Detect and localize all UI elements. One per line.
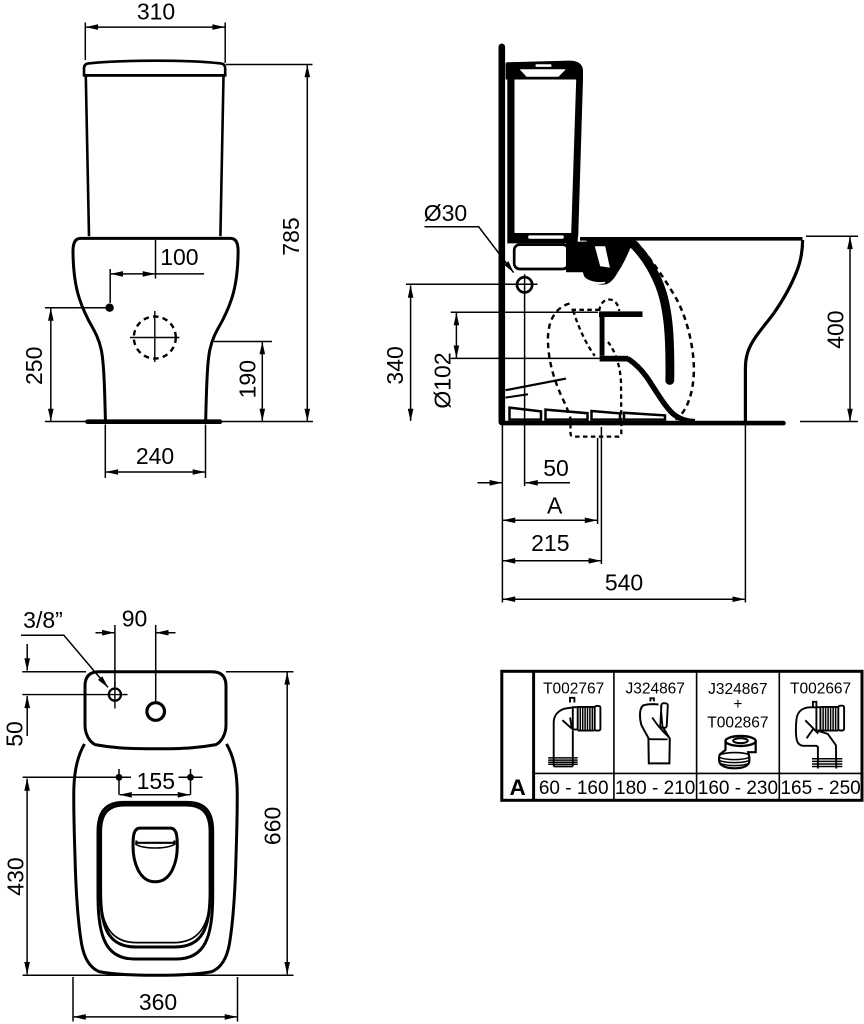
svg-text:540: 540 xyxy=(605,570,643,596)
svg-text:3/8”: 3/8” xyxy=(23,607,63,633)
svg-text:660: 660 xyxy=(260,807,286,845)
svg-text:100: 100 xyxy=(160,244,198,270)
svg-text:310: 310 xyxy=(137,0,175,25)
svg-text:A: A xyxy=(509,775,525,800)
svg-text:90: 90 xyxy=(122,606,148,632)
svg-text:215: 215 xyxy=(531,530,569,556)
svg-text:+: + xyxy=(733,696,742,713)
svg-text:J324867: J324867 xyxy=(625,681,684,698)
svg-text:430: 430 xyxy=(3,857,29,895)
svg-text:T002867: T002867 xyxy=(707,715,768,732)
svg-text:250: 250 xyxy=(21,347,47,385)
svg-text:165 - 250: 165 - 250 xyxy=(780,778,860,799)
svg-text:160 - 230: 160 - 230 xyxy=(698,778,778,799)
svg-text:T002667: T002667 xyxy=(790,681,851,698)
svg-text:785: 785 xyxy=(278,217,304,255)
svg-text:60 - 160: 60 - 160 xyxy=(539,778,609,799)
svg-text:360: 360 xyxy=(139,989,177,1015)
svg-text:340: 340 xyxy=(382,346,408,384)
svg-text:180 - 210: 180 - 210 xyxy=(615,778,695,799)
svg-text:50: 50 xyxy=(2,721,28,747)
svg-text:400: 400 xyxy=(823,310,849,348)
svg-text:T002767: T002767 xyxy=(543,681,604,698)
svg-text:Ø102: Ø102 xyxy=(429,352,455,408)
svg-text:A: A xyxy=(547,492,563,518)
svg-text:240: 240 xyxy=(136,443,174,469)
svg-text:190: 190 xyxy=(235,360,261,398)
svg-text:155: 155 xyxy=(137,768,175,794)
svg-text:Ø30: Ø30 xyxy=(424,200,467,226)
svg-text:50: 50 xyxy=(543,455,569,481)
